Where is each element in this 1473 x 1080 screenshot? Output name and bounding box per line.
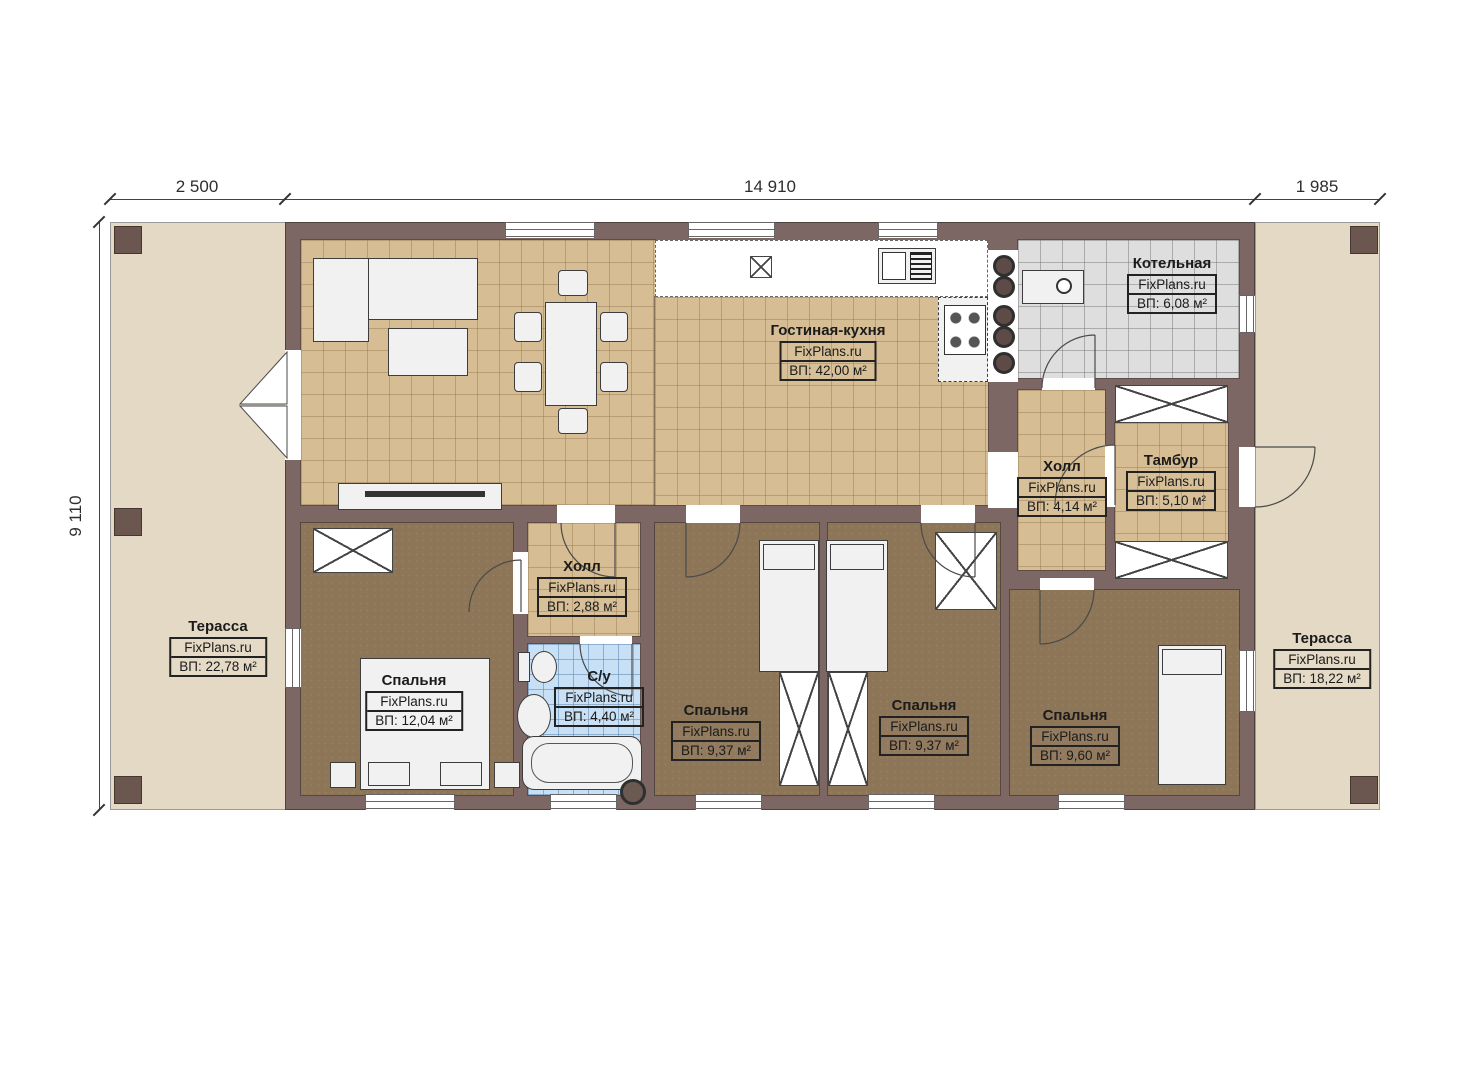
room-area: ВП: 22,78 м²	[171, 658, 265, 675]
dining-chair	[600, 312, 628, 342]
window	[1239, 650, 1255, 712]
pipe-riser	[993, 255, 1015, 277]
room-area: ВП: 9,37 м²	[673, 742, 759, 759]
window	[365, 794, 455, 810]
room-name: Котельная	[1127, 255, 1217, 272]
pillow	[830, 544, 884, 570]
door-opening	[1040, 578, 1094, 590]
wardrobe	[1115, 541, 1228, 579]
door-opening	[1042, 378, 1095, 390]
room-name: Спальня	[1030, 707, 1120, 724]
watermark: FixPlans.ru	[171, 639, 265, 658]
terrace-column	[1350, 226, 1378, 254]
toilet-tank	[518, 652, 530, 682]
pipe-riser	[993, 276, 1015, 298]
tv	[365, 491, 485, 497]
floor-plan-canvas: 2 500 14 910 1 985 9 110	[0, 0, 1473, 1080]
cooktop-symbol	[750, 256, 772, 278]
pipe-riser	[993, 305, 1015, 327]
pillow	[1162, 649, 1222, 675]
dining-chair	[514, 362, 542, 392]
room-area: ВП: 18,22 м²	[1275, 670, 1369, 687]
watermark: FixPlans.ru	[1129, 276, 1215, 295]
room-label-bedroom-3: Спальня FixPlans.ru ВП: 9,37 м²	[879, 697, 969, 756]
room-name: Холл	[537, 558, 627, 575]
wardrobe	[935, 532, 997, 610]
room-label-hall-2: Холл FixPlans.ru ВП: 2,88 м²	[537, 558, 627, 617]
watermark: FixPlans.ru	[1275, 651, 1369, 670]
room-label-hall-1: Холл FixPlans.ru ВП: 4,14 м²	[1017, 458, 1107, 517]
window	[285, 628, 301, 688]
bathroom-sink	[517, 694, 551, 738]
room-label-tambur: Тамбур FixPlans.ru ВП: 5,10 м²	[1126, 452, 1216, 511]
room-label-terrace-right: Терасса FixPlans.ru ВП: 18,22 м²	[1273, 630, 1371, 689]
washing-machine	[620, 779, 646, 805]
dining-chair	[558, 270, 588, 296]
room-label-terrace-left: Терасса FixPlans.ru ВП: 22,78 м²	[169, 618, 267, 677]
boiler-equipment	[1022, 270, 1084, 304]
room-area: ВП: 9,37 м²	[881, 737, 967, 754]
terrace-column	[114, 776, 142, 804]
room-area: ВП: 2,88 м²	[539, 598, 625, 615]
room-name: Спальня	[879, 697, 969, 714]
pipe-riser	[993, 326, 1015, 348]
room-name: Терасса	[1273, 630, 1371, 647]
room-name: Терасса	[169, 618, 267, 635]
kitchen-drainboard	[910, 252, 932, 280]
dining-chair	[600, 362, 628, 392]
window	[695, 794, 762, 810]
french-door-opening	[285, 350, 301, 460]
door-opening	[921, 505, 975, 523]
room-area: ВП: 4,14 м²	[1019, 498, 1105, 515]
room-area: ВП: 9,60 м²	[1032, 747, 1118, 764]
room-name: С/у	[554, 668, 644, 685]
watermark: FixPlans.ru	[1032, 728, 1118, 747]
watermark: FixPlans.ru	[539, 579, 625, 598]
nightstand	[494, 762, 520, 788]
kitchen-counter	[655, 240, 988, 297]
dimension-line-left	[99, 222, 100, 810]
room-name: Спальня	[365, 672, 463, 689]
dimension-label-top-right: 1 985	[1296, 177, 1339, 197]
room-name: Холл	[1017, 458, 1107, 475]
dining-chair	[558, 408, 588, 434]
wall-opening	[988, 452, 1018, 508]
room-label-bedroom-1: Спальня FixPlans.ru ВП: 12,04 м²	[365, 672, 463, 731]
dimension-label-top-left: 2 500	[176, 177, 219, 197]
window	[550, 794, 617, 810]
terrace-column	[114, 508, 142, 536]
window	[878, 222, 938, 238]
sofa-chaise	[313, 258, 369, 342]
watermark: FixPlans.ru	[1019, 479, 1105, 498]
window	[868, 794, 935, 810]
watermark: FixPlans.ru	[1128, 473, 1214, 492]
room-label-boiler: Котельная FixPlans.ru ВП: 6,08 м²	[1127, 255, 1217, 314]
wardrobe	[1115, 385, 1228, 423]
terrace-right	[1255, 222, 1380, 810]
room-area: ВП: 4,40 м²	[556, 708, 642, 725]
watermark: FixPlans.ru	[781, 343, 875, 362]
boiler-burner	[1056, 278, 1072, 294]
pipe-riser	[993, 352, 1015, 374]
door-opening	[686, 505, 740, 523]
pillow	[763, 544, 815, 570]
dimension-label-top-middle: 14 910	[744, 177, 796, 197]
room-area: ВП: 5,10 м²	[1128, 492, 1214, 509]
room-name: Спальня	[671, 702, 761, 719]
room-name: Тамбур	[1126, 452, 1216, 469]
pillow	[440, 762, 482, 786]
room-label-bedroom-4: Спальня FixPlans.ru ВП: 9,60 м²	[1030, 707, 1120, 766]
stove	[944, 305, 986, 355]
dining-chair	[514, 312, 542, 342]
room-name: Гостиная-кухня	[771, 322, 886, 339]
terrace-column	[1350, 776, 1378, 804]
watermark: FixPlans.ru	[881, 718, 967, 737]
room-label-bedroom-2: Спальня FixPlans.ru ВП: 9,37 м²	[671, 702, 761, 761]
room-label-living-kitchen: Гостиная-кухня FixPlans.ru ВП: 42,00 м²	[771, 322, 886, 381]
room-area: ВП: 42,00 м²	[781, 362, 875, 379]
wardrobe	[313, 528, 393, 573]
entry-door-opening	[1239, 447, 1255, 507]
pillow	[368, 762, 410, 786]
watermark: FixPlans.ru	[673, 723, 759, 742]
window	[1239, 295, 1255, 333]
watermark: FixPlans.ru	[556, 689, 642, 708]
window	[1058, 794, 1125, 810]
door-opening	[580, 636, 632, 644]
dining-table	[545, 302, 597, 406]
wardrobe	[779, 672, 819, 786]
nightstand	[330, 762, 356, 788]
room-area: ВП: 12,04 м²	[367, 712, 461, 729]
window	[688, 222, 775, 238]
door-opening	[513, 552, 528, 614]
coffee-table	[388, 328, 468, 376]
window	[505, 222, 595, 238]
kitchen-sink-bowl	[882, 252, 906, 280]
room-label-bathroom: С/у FixPlans.ru ВП: 4,40 м²	[554, 668, 644, 727]
room-area: ВП: 6,08 м²	[1129, 295, 1215, 312]
dimension-line-top	[110, 199, 1380, 200]
door-opening	[557, 505, 615, 523]
watermark: FixPlans.ru	[367, 693, 461, 712]
terrace-column	[114, 226, 142, 254]
bathtub-inner	[531, 743, 633, 783]
dimension-label-left-side: 9 110	[66, 495, 86, 536]
wardrobe	[828, 672, 868, 786]
